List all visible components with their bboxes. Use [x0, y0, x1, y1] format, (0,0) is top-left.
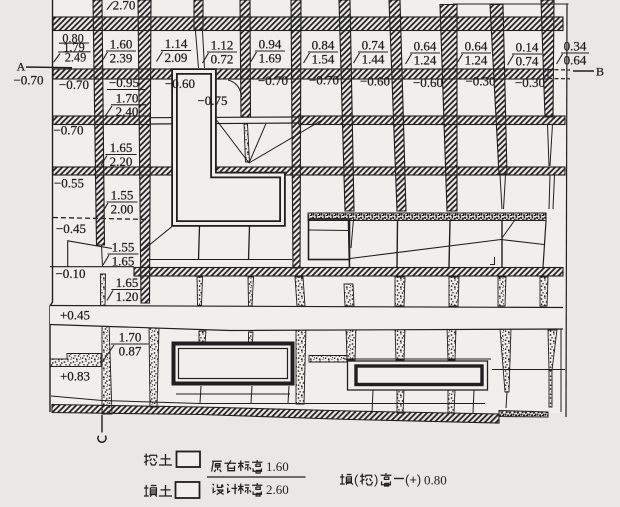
svg-text:1.24: 1.24: [414, 52, 437, 67]
svg-text:2.49: 2.49: [65, 50, 86, 64]
svg-text:−0.30: −0.30: [465, 74, 495, 89]
svg-text:2.60: 2.60: [266, 482, 289, 497]
svg-text:1.55: 1.55: [112, 240, 135, 255]
svg-text:0.74: 0.74: [362, 38, 385, 53]
svg-text:1.65: 1.65: [112, 253, 135, 268]
svg-text:−0.55: −0.55: [54, 176, 84, 191]
svg-text:1.69: 1.69: [259, 50, 282, 65]
svg-text:−0.70: −0.70: [59, 77, 89, 92]
svg-text:1.14: 1.14: [165, 36, 188, 51]
svg-text:−0.60: −0.60: [360, 74, 390, 89]
svg-text:0.34: 0.34: [564, 39, 587, 54]
svg-text:2.20: 2.20: [110, 154, 133, 169]
svg-text:1.44: 1.44: [362, 51, 385, 66]
svg-text:2.00: 2.00: [111, 201, 134, 216]
svg-text:+0.45: +0.45: [60, 308, 90, 323]
svg-text:0.72: 0.72: [211, 51, 234, 66]
svg-text:−0.70: −0.70: [309, 73, 339, 88]
svg-text:1.55: 1.55: [111, 188, 134, 203]
svg-text:−0.75: −0.75: [197, 93, 227, 108]
svg-text:A: A: [17, 60, 26, 74]
svg-text:0.84: 0.84: [312, 38, 335, 53]
svg-text:−0.10: −0.10: [55, 266, 85, 281]
svg-text:−0.70: −0.70: [13, 73, 43, 88]
svg-text:(+): (+): [405, 472, 421, 487]
svg-text:2.40: 2.40: [116, 104, 139, 119]
svg-text:2.09: 2.09: [165, 50, 188, 65]
svg-text:0.80: 0.80: [424, 473, 447, 488]
svg-text:1.65: 1.65: [116, 275, 139, 290]
svg-text:1.65: 1.65: [110, 140, 133, 155]
svg-text:−0.45: −0.45: [56, 221, 86, 236]
svg-text:0.64: 0.64: [564, 52, 587, 67]
svg-text:−0.60: −0.60: [413, 75, 443, 90]
svg-text:1.54: 1.54: [312, 51, 335, 66]
svg-text:0.87: 0.87: [119, 343, 142, 358]
svg-text:1.20: 1.20: [116, 289, 139, 304]
svg-text:2.39: 2.39: [110, 50, 133, 65]
svg-text:−0.95: −0.95: [109, 75, 139, 90]
svg-text:1.24: 1.24: [465, 52, 488, 67]
svg-text:0.64: 0.64: [465, 39, 488, 54]
svg-text:−0.70: −0.70: [53, 123, 83, 138]
svg-text:1.60: 1.60: [110, 37, 133, 52]
svg-text:1.60: 1.60: [266, 459, 289, 474]
svg-text:0.14: 0.14: [516, 40, 539, 55]
svg-text:+0.83: +0.83: [60, 369, 90, 384]
svg-text:0.94: 0.94: [259, 37, 282, 52]
svg-text:−0.70: −0.70: [258, 73, 288, 88]
svg-text:): ): [374, 472, 378, 487]
svg-text:1.70: 1.70: [119, 330, 142, 345]
svg-text:−0.60: −0.60: [165, 76, 195, 91]
svg-text:0.74: 0.74: [516, 53, 539, 68]
svg-text:2.70: 2.70: [113, 0, 136, 13]
svg-text:0.64: 0.64: [414, 39, 437, 54]
svg-text:−0.30: −0.30: [515, 75, 545, 90]
svg-text:1.12: 1.12: [211, 38, 234, 53]
svg-text:B: B: [596, 65, 604, 79]
svg-text:(: (: [354, 472, 359, 487]
